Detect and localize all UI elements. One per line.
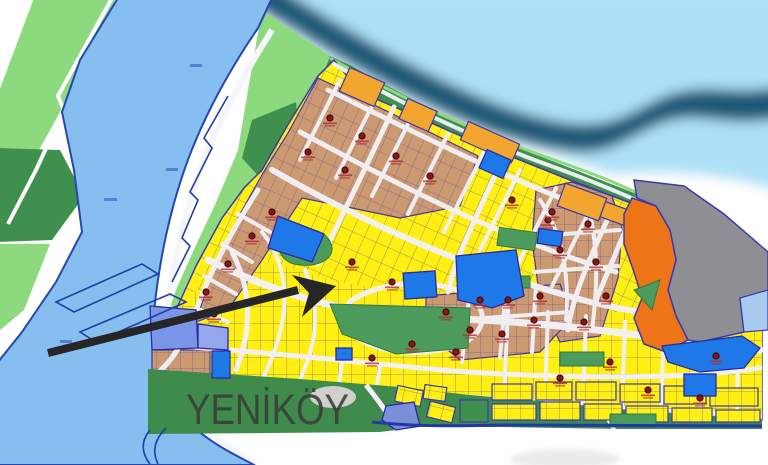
lightblue-parcel [740, 290, 768, 332]
south-forest-parcel [460, 400, 488, 422]
zoning-map-canvas[interactable]: YENİKÖY [0, 0, 768, 465]
bottom-smudge [510, 449, 620, 465]
yenikoy-zoning-map[interactable]: YENİKÖY [0, 0, 768, 465]
place-label: YENİKÖY [186, 386, 349, 434]
